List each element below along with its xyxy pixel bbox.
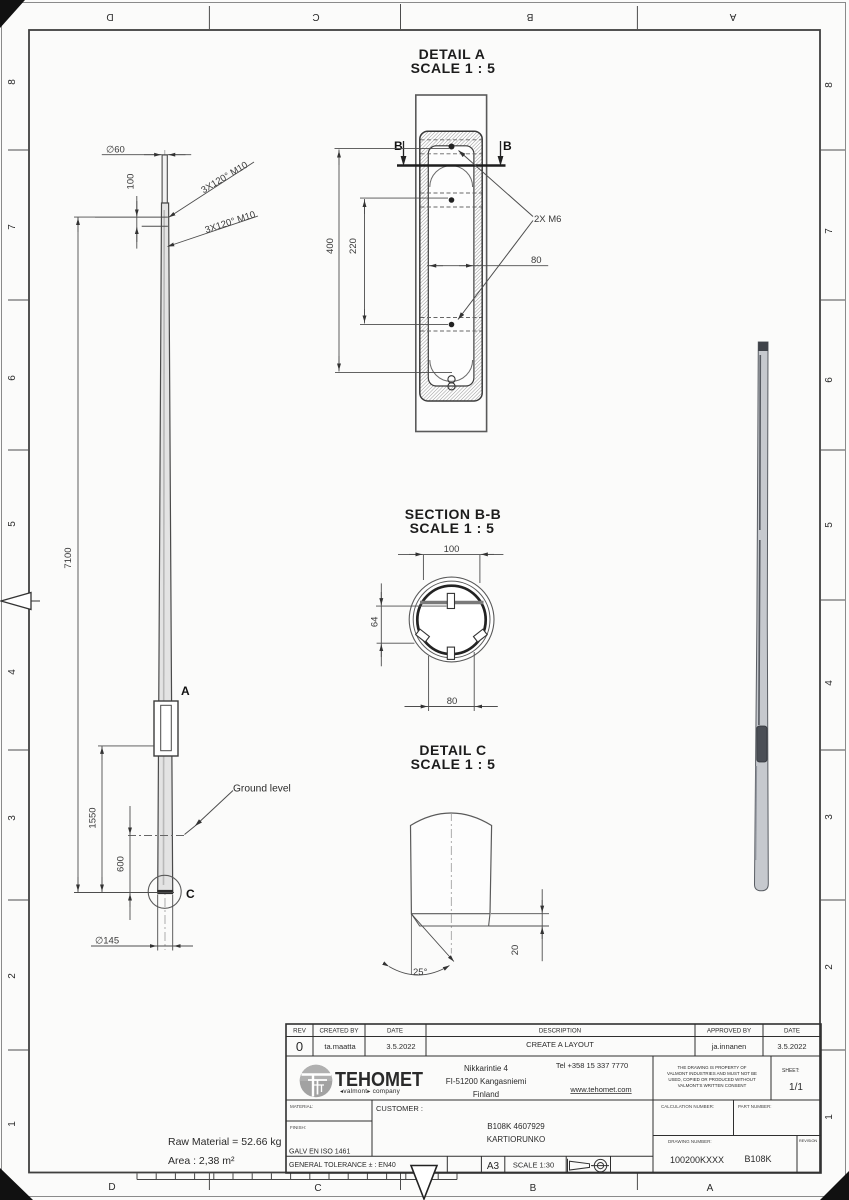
svg-text:600: 600 [116,856,127,872]
svg-text:REVISION: REVISION [799,1139,817,1143]
svg-text:DATE: DATE [784,1028,800,1035]
svg-text:SCALE 1:30: SCALE 1:30 [513,1161,554,1170]
svg-text:VALMONT INDUSTRIES AND MUST NO: VALMONT INDUSTRIES AND MUST NOT BE [667,1071,757,1076]
svg-text:GALV EN ISO 1461: GALV EN ISO 1461 [289,1149,350,1156]
svg-text:C: C [314,1183,321,1194]
svg-text:100: 100 [444,544,460,555]
svg-text:APPROVED BY: APPROVED BY [707,1028,751,1035]
svg-text:6: 6 [824,377,835,383]
svg-text:USED, COPIED OR PRODUCED WITHO: USED, COPIED OR PRODUCED WITHOUT [668,1077,756,1082]
svg-text:5: 5 [824,522,835,528]
svg-text:100: 100 [126,174,137,190]
svg-text:1550: 1550 [88,807,99,828]
svg-text:D: D [106,11,113,22]
svg-text:B: B [526,11,533,22]
svg-text:3.5.2022: 3.5.2022 [386,1042,415,1051]
svg-text:4: 4 [824,680,835,686]
svg-text:CALCULATION NUMBER:: CALCULATION NUMBER: [661,1104,714,1109]
svg-text:1: 1 [824,1114,835,1120]
svg-text:SCALE 1 : 5: SCALE 1 : 5 [411,756,496,772]
svg-text:FINISH:: FINISH: [290,1125,306,1130]
svg-text:Ground level: Ground level [233,784,291,795]
svg-text:Finland: Finland [473,1090,499,1099]
svg-text:◂valmont▸ company: ◂valmont▸ company [340,1088,401,1095]
svg-text:B: B [394,139,403,153]
svg-text:2: 2 [7,973,18,979]
svg-text:64: 64 [370,617,381,628]
svg-text:DATE: DATE [387,1028,403,1035]
svg-text:100200KXXX: 100200KXXX [670,1155,724,1165]
svg-text:B108K: B108K [744,1154,771,1164]
svg-text:SHEET:: SHEET: [782,1068,800,1074]
svg-text:Nikkarintie 4: Nikkarintie 4 [464,1064,509,1073]
svg-text:CREATE A LAYOUT: CREATE A LAYOUT [526,1040,594,1049]
svg-text:B108K 4607929: B108K 4607929 [487,1122,545,1131]
svg-text:5: 5 [7,521,18,527]
svg-text:1: 1 [7,1121,18,1127]
svg-text:∅145: ∅145 [95,936,119,947]
svg-text:7: 7 [824,228,835,234]
svg-text:C: C [312,11,319,22]
svg-text:B: B [503,139,512,153]
svg-text:3: 3 [7,815,18,821]
svg-text:CREATED BY: CREATED BY [319,1028,358,1035]
svg-text:DRAWING NUMBER:: DRAWING NUMBER: [668,1139,712,1144]
svg-text:8: 8 [7,79,18,85]
svg-text:80: 80 [531,255,542,266]
svg-text:SCALE 1 : 5: SCALE 1 : 5 [410,520,495,536]
svg-text:Raw Material = 52.66 kg: Raw Material = 52.66 kg [168,1136,282,1148]
svg-text:3: 3 [824,814,835,820]
svg-text:A: A [729,11,736,22]
svg-text:FI-51200 Kangasniemi: FI-51200 Kangasniemi [446,1077,527,1086]
svg-text:7100: 7100 [63,547,74,568]
svg-text:A3: A3 [487,1161,500,1172]
svg-text:0: 0 [296,1039,303,1054]
svg-text:∅60: ∅60 [106,145,125,156]
svg-text:2X M6: 2X M6 [534,214,561,225]
svg-text:B: B [530,1183,537,1194]
svg-text:Tel +358 15 337 7770: Tel +358 15 337 7770 [556,1061,628,1070]
svg-text:ta.maatta: ta.maatta [324,1042,356,1051]
svg-text:KARTIORUNKO: KARTIORUNKO [487,1135,546,1144]
svg-text:6: 6 [7,375,18,381]
svg-text:DESCRIPTION: DESCRIPTION [539,1028,581,1035]
svg-text:D: D [108,1182,115,1193]
svg-text:SCALE 1 : 5: SCALE 1 : 5 [411,60,496,76]
svg-text:MATERIAL:: MATERIAL: [290,1104,313,1109]
svg-text:A: A [181,684,190,698]
svg-text:Area : 2,38 m²: Area : 2,38 m² [168,1155,235,1167]
svg-text:REV: REV [293,1028,307,1035]
svg-text:2: 2 [824,964,835,970]
svg-text:ja.innanen: ja.innanen [711,1042,747,1051]
svg-text:1/1: 1/1 [789,1082,803,1093]
svg-text:80: 80 [447,696,458,707]
svg-text:CUSTOMER :: CUSTOMER : [376,1104,423,1113]
svg-text:C: C [186,887,195,901]
svg-text:www.tehomet.com: www.tehomet.com [569,1085,631,1094]
svg-text:8: 8 [824,82,835,88]
svg-text:400: 400 [325,238,336,254]
svg-text:PART NUMBER:: PART NUMBER: [738,1104,772,1109]
svg-text:7: 7 [7,224,18,230]
svg-text:GENERAL TOLERANCE ± : EN40: GENERAL TOLERANCE ± : EN40 [289,1162,396,1169]
svg-text:220: 220 [348,238,359,254]
svg-text:A: A [707,1183,714,1194]
svg-text:THE DRAWING IS PROPERTY OF: THE DRAWING IS PROPERTY OF [678,1065,747,1070]
svg-text:25°: 25° [413,967,428,978]
svg-text:VALMONT'S WRITTEN CONSENT: VALMONT'S WRITTEN CONSENT [678,1083,747,1088]
svg-text:20: 20 [510,945,521,956]
svg-text:4: 4 [7,669,18,675]
svg-text:3.5.2022: 3.5.2022 [777,1042,806,1051]
